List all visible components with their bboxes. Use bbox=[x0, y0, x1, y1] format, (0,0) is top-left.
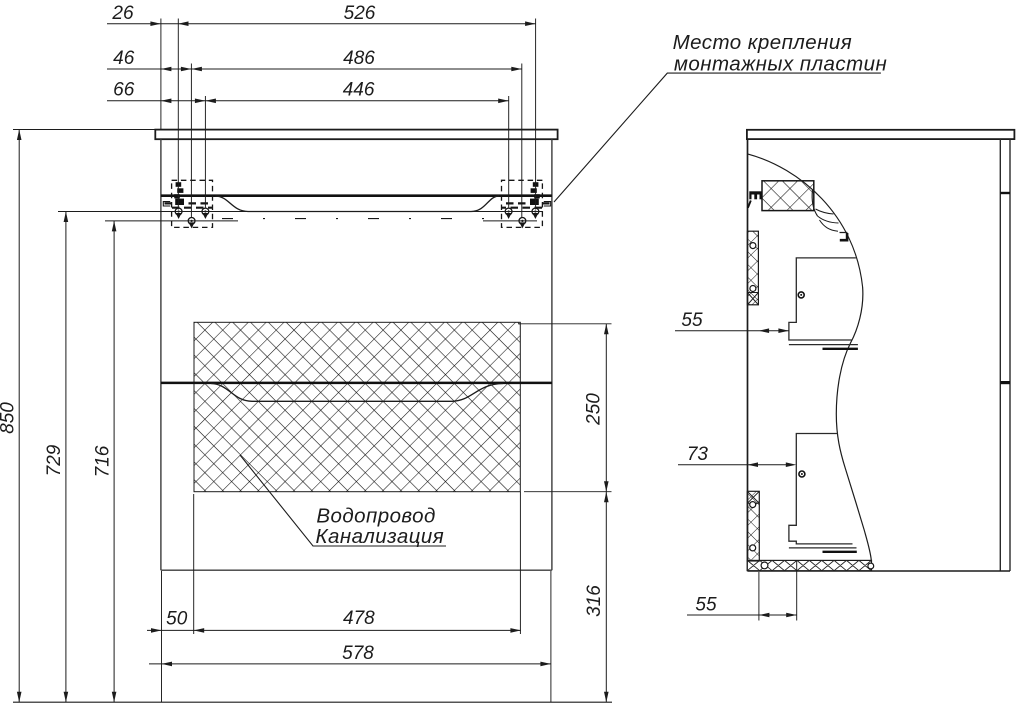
svg-text:26: 26 bbox=[111, 3, 134, 24]
svg-text:850: 850 bbox=[0, 402, 19, 434]
svg-text:250: 250 bbox=[584, 393, 605, 426]
svg-text:526: 526 bbox=[344, 3, 376, 24]
svg-text:50: 50 bbox=[166, 609, 188, 630]
svg-text:478: 478 bbox=[343, 608, 375, 629]
svg-text:66: 66 bbox=[113, 80, 135, 101]
svg-text:46: 46 bbox=[113, 48, 135, 69]
svg-text:73: 73 bbox=[687, 444, 709, 465]
svg-text:Место крепления: Место крепления bbox=[673, 31, 853, 54]
svg-text:729: 729 bbox=[44, 444, 65, 476]
svg-text:Канализация: Канализация bbox=[316, 525, 445, 548]
svg-text:446: 446 bbox=[343, 80, 375, 101]
svg-text:монтажных пластин: монтажных пластин bbox=[674, 52, 887, 75]
svg-text:578: 578 bbox=[342, 643, 374, 664]
svg-text:716: 716 bbox=[92, 445, 113, 477]
svg-text:55: 55 bbox=[695, 595, 717, 616]
svg-text:486: 486 bbox=[343, 48, 375, 69]
svg-text:316: 316 bbox=[584, 585, 605, 617]
svg-text:55: 55 bbox=[681, 310, 703, 331]
